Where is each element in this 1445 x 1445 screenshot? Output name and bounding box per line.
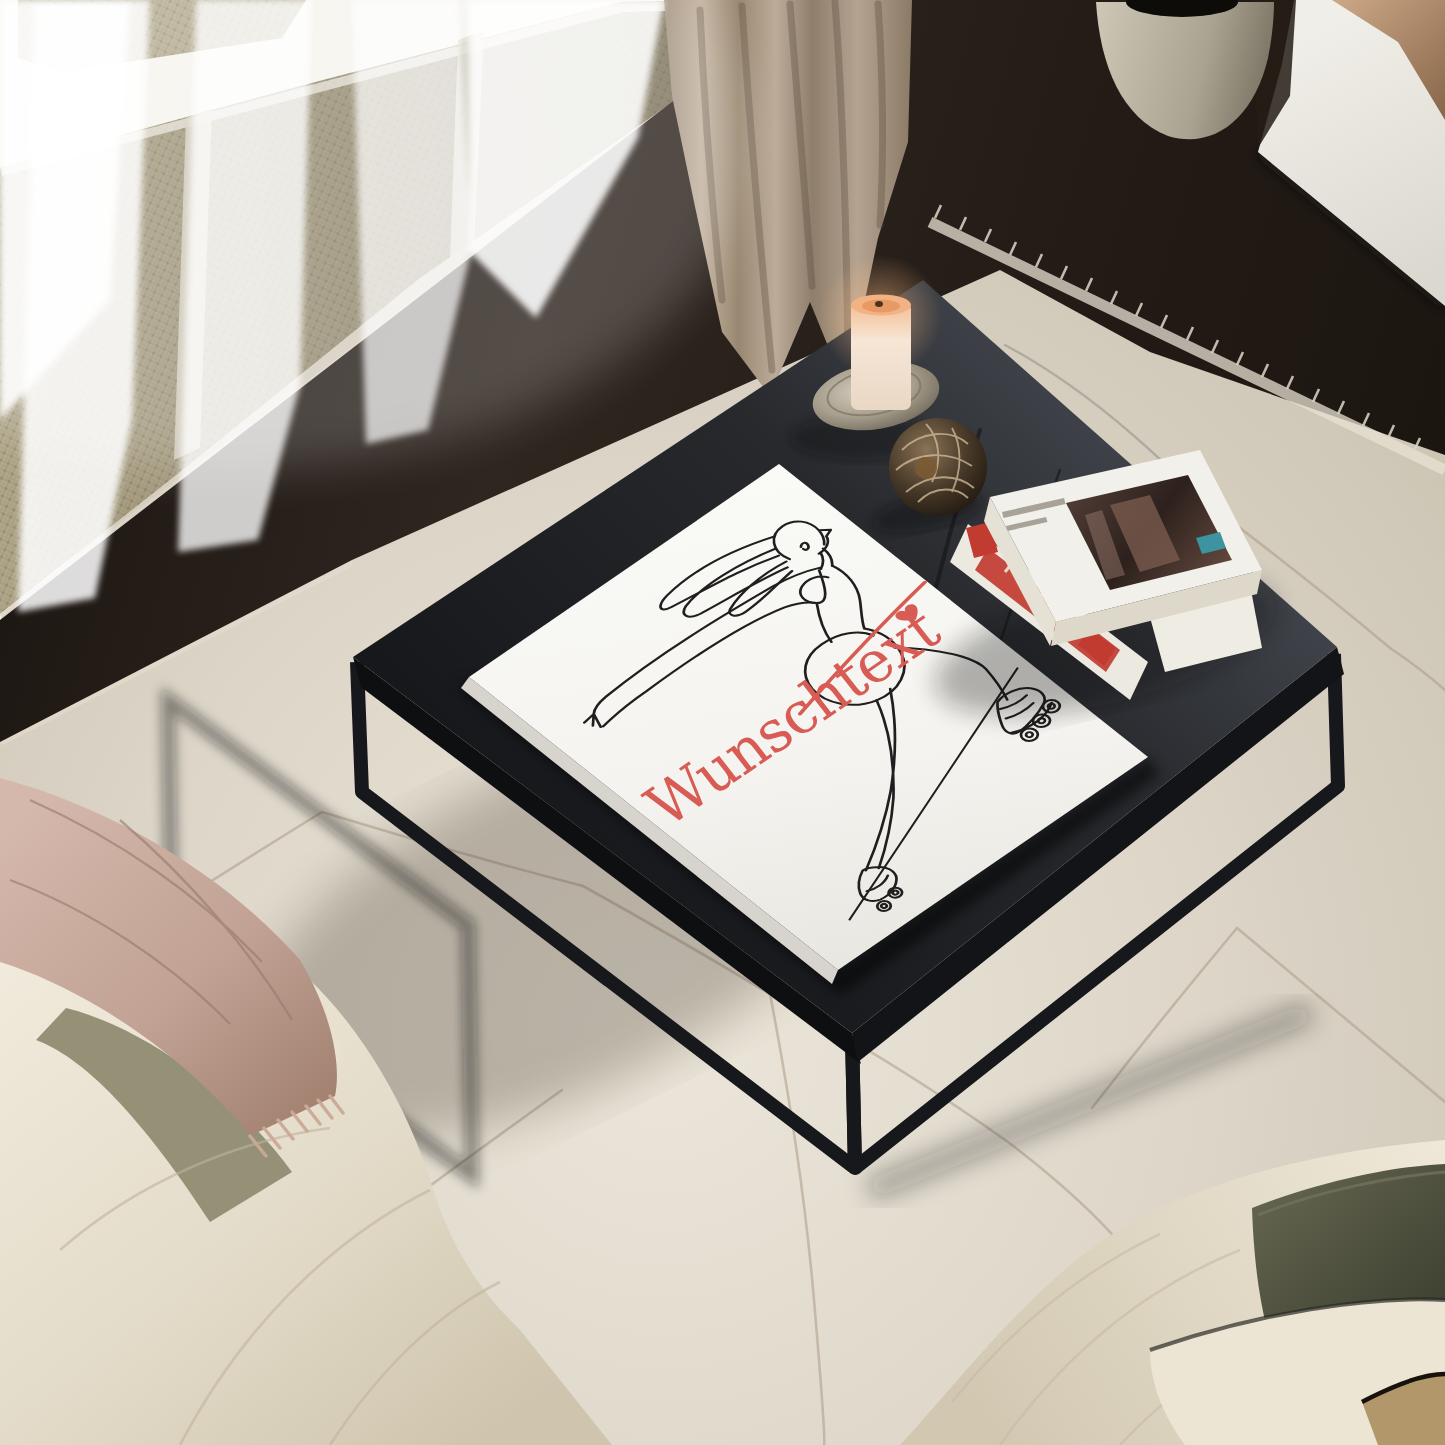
candle-wick (875, 301, 883, 307)
scene: Wunschtext (0, 0, 1445, 1445)
living-room-product-photo: Wunschtext (0, 0, 1445, 1445)
candle (851, 302, 911, 410)
